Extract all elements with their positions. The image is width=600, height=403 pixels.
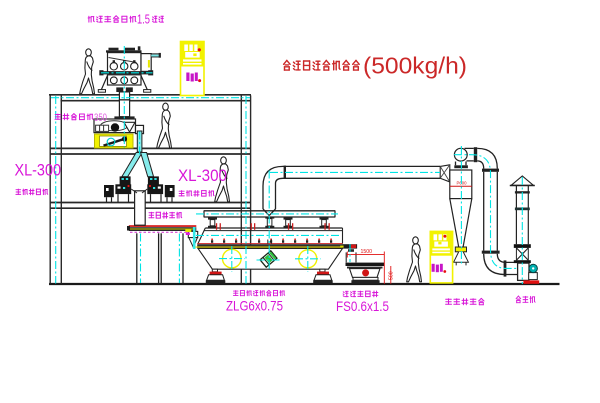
svg-text:1500: 1500	[361, 249, 373, 255]
svg-text:1.5: 1.5	[137, 13, 150, 27]
svg-text:(500kg/h): (500kg/h)	[363, 53, 467, 79]
svg-text:XL-300: XL-300	[15, 161, 62, 180]
svg-text:ZLG6x0.75: ZLG6x0.75	[226, 298, 283, 314]
svg-text:FS0.6x1.5: FS0.6x1.5	[336, 298, 389, 314]
svg-text:500: 500	[389, 271, 395, 280]
svg-text:350: 350	[94, 112, 107, 124]
svg-text:XL-300: XL-300	[178, 166, 227, 185]
